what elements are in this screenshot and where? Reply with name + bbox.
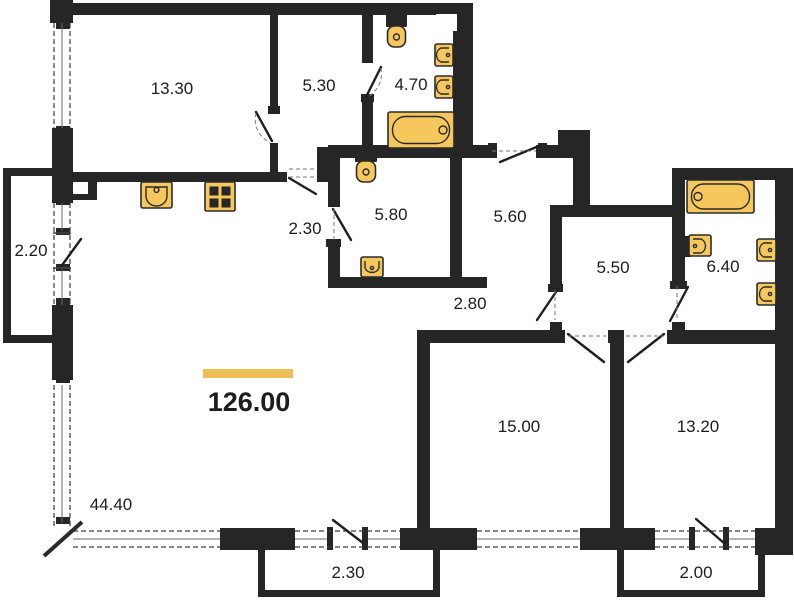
room-area-label: 2.20 xyxy=(14,241,47,260)
room-area-label: 5.60 xyxy=(493,207,526,226)
floor-plan: 13.30 5.30 4.70 2.20 2.30 5.80 5.60 5.50… xyxy=(0,0,794,600)
stove-icon xyxy=(205,182,235,211)
windows xyxy=(44,23,755,556)
kitchen-sink-icon xyxy=(141,182,172,208)
accent-bar xyxy=(203,369,293,378)
washbasin-icon xyxy=(361,257,383,277)
bathtub-icon xyxy=(388,112,454,148)
room-area-label: 2.00 xyxy=(679,563,712,582)
room-area-label: 2.80 xyxy=(453,294,486,313)
room-area-label: 13.30 xyxy=(151,79,194,98)
washbasin-icon xyxy=(689,235,711,256)
vent-shaft xyxy=(436,14,457,31)
washbasin-icon xyxy=(757,283,776,305)
total-area-label: 126.00 xyxy=(208,387,291,417)
room-area-label: 4.70 xyxy=(394,75,427,94)
floor-plan-canvas: 13.30 5.30 4.70 2.20 2.30 5.80 5.60 5.50… xyxy=(0,0,794,600)
room-area-label: 6.40 xyxy=(706,257,739,276)
toilet-icon xyxy=(386,13,407,47)
room-area-label: 5.80 xyxy=(374,205,407,224)
total-area: 126.00 xyxy=(203,369,293,417)
room-area-label: 2.30 xyxy=(288,219,321,238)
room-area-label: 2.30 xyxy=(331,563,364,582)
room-area-label: 44.40 xyxy=(90,495,133,514)
room-area-label: 15.00 xyxy=(498,417,541,436)
room-area-label: 5.30 xyxy=(302,76,335,95)
room-area-label: 13.20 xyxy=(677,417,720,436)
room-area-label: 5.50 xyxy=(596,258,629,277)
toilet-icon xyxy=(355,149,377,182)
washbasin-icon xyxy=(435,76,453,98)
washbasin-icon xyxy=(435,44,453,66)
washbasin-icon xyxy=(757,239,776,261)
bathtub-icon xyxy=(687,180,754,213)
